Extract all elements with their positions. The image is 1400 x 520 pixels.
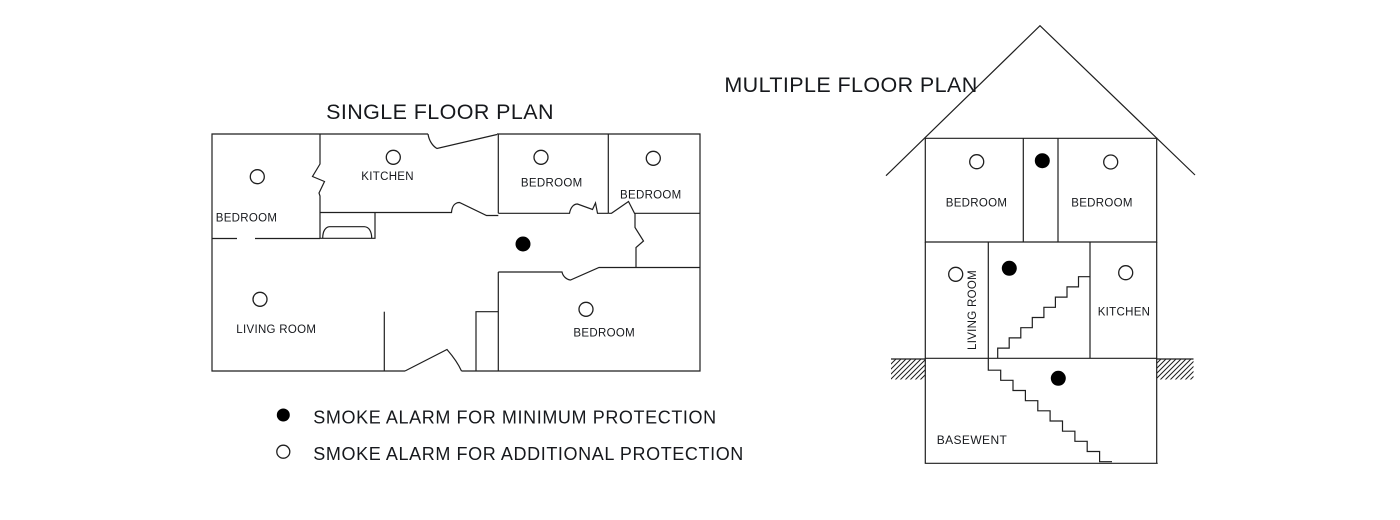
- house-roof: [886, 26, 1195, 176]
- single-floor-plan: SINGLE FLOOR PLAN: [212, 100, 700, 371]
- smoke-alarm-additional-icon: [386, 150, 400, 164]
- smoke-alarm-minimum-icon: [1002, 261, 1017, 276]
- room-label-living-room-vertical: LIVING ROOM: [967, 270, 979, 350]
- room-label-kitchen: KITCHEN: [361, 171, 414, 183]
- smoke-alarm-additional-icon: [1104, 155, 1118, 169]
- smoke-alarm-minimum-icon: [516, 237, 531, 252]
- house-middle-floor: [925, 242, 1156, 358]
- room-label-bedroom-top-right: BEDROOM: [620, 190, 682, 202]
- smoke-alarm-additional-icon: [579, 302, 593, 316]
- single-wall-bedroom-kitchen: [313, 134, 325, 239]
- room-label-bedroom-top-middle: BEDROOM: [521, 178, 583, 190]
- multiple-floor-title: MULTIPLE FLOOR PLAN: [724, 73, 977, 97]
- room-label-living-room: LIVING ROOM: [236, 324, 316, 336]
- smoke-alarm-additional-icon: [250, 170, 264, 184]
- legend-additional-label: SMOKE ALARM FOR ADDITIONAL PROTECTION: [313, 444, 744, 464]
- single-floor-title: SINGLE FLOOR PLAN: [326, 100, 554, 124]
- smoke-alarm-additional-icon: [1119, 266, 1133, 280]
- single-wall-midbedroom-bottom: [498, 203, 608, 213]
- smoke-alarm-additional-icon: [253, 292, 267, 306]
- ground-hatch-right: [1157, 359, 1194, 380]
- legend-filled-circle-icon: [277, 409, 290, 422]
- room-label-bedroom-left: BEDROOM: [946, 198, 1008, 210]
- legend-open-circle-icon: [277, 445, 290, 458]
- single-top-door: [428, 134, 497, 149]
- smoke-alarm-additional-icon: [970, 155, 984, 169]
- diagram-canvas: SINGLE FLOOR PLAN: [0, 0, 1400, 520]
- smoke-alarm-additional-icon: [534, 150, 548, 164]
- single-wall-bottombedroom-top: [498, 268, 700, 281]
- single-wall-kitchen-bottom: [320, 203, 498, 216]
- single-wall-rightbedroom-bottom: [608, 202, 700, 214]
- multiple-floor-plan: MULTIPLE FLOOR PLAN BEDROOM BEDROOM LIVI…: [724, 26, 1195, 464]
- smoke-alarm-additional-icon: [646, 151, 660, 165]
- smoke-alarm-additional-icon: [949, 267, 963, 281]
- room-label-bedroom-right: BEDROOM: [1071, 198, 1133, 210]
- smoke-alarm-minimum-icon: [1035, 153, 1050, 168]
- ground-hatch-left: [891, 359, 925, 380]
- single-bottom-door: [405, 350, 462, 372]
- single-wall-rightroom-left: [635, 213, 644, 267]
- legend-minimum-label: SMOKE ALARM FOR MINIMUM PROTECTION: [313, 408, 716, 428]
- single-kitchen-closet: [320, 213, 375, 239]
- legend: SMOKE ALARM FOR MINIMUM PROTECTION SMOKE…: [277, 408, 744, 465]
- room-label-basement: BASEWENT: [937, 433, 1008, 447]
- smoke-alarm-minimum-icon: [1051, 371, 1066, 386]
- room-label-bedroom-top-left: BEDROOM: [216, 213, 278, 225]
- floor-plan-drawing: SINGLE FLOOR PLAN: [0, 0, 1400, 520]
- stairs-middle-icon: [998, 277, 1090, 359]
- room-label-bedroom-bottom: BEDROOM: [573, 328, 635, 340]
- single-bottom-closet: [476, 312, 498, 371]
- room-label-kitchen: KITCHEN: [1098, 307, 1151, 319]
